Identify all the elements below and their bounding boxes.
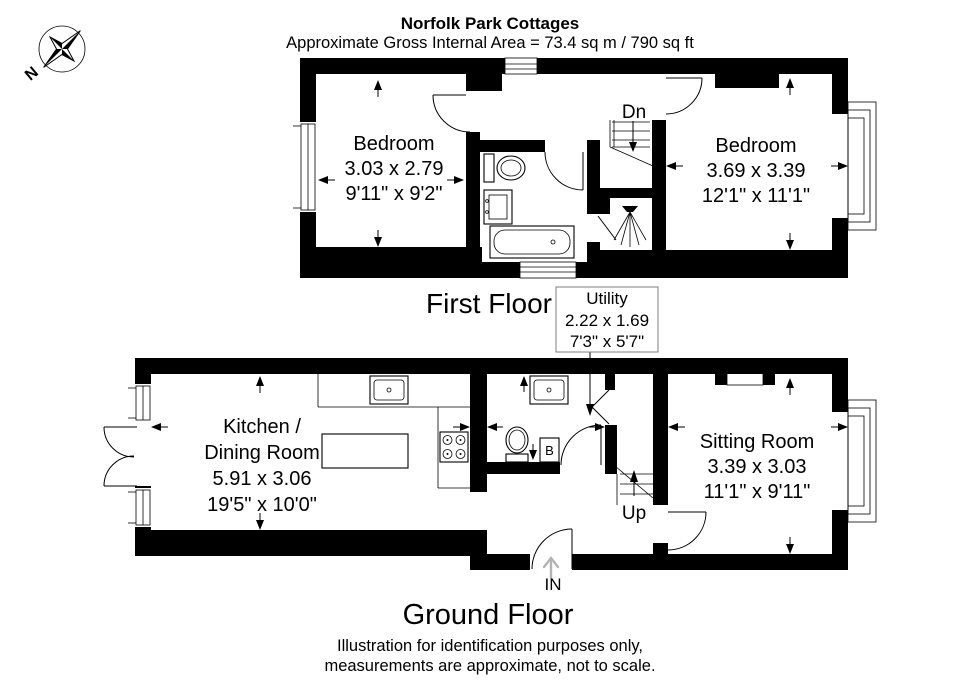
bedroom2-imperial: 12'1" x 11'1" bbox=[702, 185, 810, 207]
first-floor-label: First Floor bbox=[426, 288, 552, 319]
first-floor-plan: Dn bbox=[293, 58, 876, 278]
bedroom2-left-wall bbox=[652, 120, 666, 250]
plan-subtitle: Approximate Gross Internal Area = 73.4 s… bbox=[286, 34, 694, 52]
bathroom-top-wall bbox=[480, 140, 545, 152]
kitchen-name-line1: Kitchen / bbox=[223, 416, 301, 438]
bedroom1-window bbox=[293, 122, 316, 212]
utility-metric: 2.22 x 1.69 bbox=[565, 311, 649, 330]
bathroom-door bbox=[545, 152, 583, 190]
bedroom1-right-wall bbox=[466, 132, 480, 247]
ground-floor-plan: Up bbox=[104, 358, 876, 578]
bedroom1-metric: 3.03 x 2.79 bbox=[345, 158, 444, 180]
boiler-label: B bbox=[545, 443, 554, 458]
disclaimer-line1: Illustration for identification purposes… bbox=[337, 637, 643, 655]
bedroom2-door bbox=[666, 78, 702, 114]
hob-icon bbox=[440, 432, 468, 462]
sitting-metric: 3.39 x 3.03 bbox=[708, 456, 807, 478]
disclaimer-line2: measurements are approximate, not to sca… bbox=[324, 657, 655, 675]
stairs-up-label: Up bbox=[622, 503, 646, 524]
plan-title: Norfolk Park Cottages bbox=[401, 14, 580, 33]
bathroom-sink bbox=[484, 190, 512, 224]
stairs-down bbox=[610, 120, 653, 166]
bedroom1-name: Bedroom bbox=[353, 133, 434, 155]
kitchen-metric: 5.91 x 3.06 bbox=[213, 468, 312, 490]
french-doors bbox=[104, 422, 151, 486]
utility-sink bbox=[530, 376, 568, 404]
toilet-ground-floor bbox=[506, 427, 528, 462]
utility-callout: Utility 2.22 x 1.69 7'3" x 5'7" bbox=[556, 287, 658, 416]
compass-icon: N bbox=[22, 26, 85, 84]
kitchen-imperial: 19'5" x 10'0" bbox=[207, 494, 317, 516]
floorplan-drawing: Norfolk Park Cottages Approximate Gross … bbox=[0, 0, 980, 692]
kitchen-utility-wall bbox=[470, 374, 487, 492]
bedroom2-name: Bedroom bbox=[715, 135, 796, 157]
bedroom1-imperial: 9'11" x 9'2" bbox=[345, 183, 442, 205]
bathroom-window bbox=[520, 262, 576, 278]
kitchen-sink bbox=[370, 376, 408, 404]
sitting-name: Sitting Room bbox=[700, 431, 815, 453]
boiler: B bbox=[540, 438, 559, 462]
sitting-room-door bbox=[668, 512, 706, 550]
sitting-room-bay-window bbox=[832, 400, 876, 522]
landing-window bbox=[505, 58, 537, 74]
floorplan-page: Norfolk Park Cottages Approximate Gross … bbox=[0, 0, 980, 692]
kitchen-island bbox=[322, 434, 408, 468]
stairs-down-label: Dn bbox=[622, 102, 646, 123]
bathtub bbox=[490, 226, 574, 258]
entrance-label: IN bbox=[545, 575, 562, 594]
sitting-imperial: 11'1" x 9'11" bbox=[704, 481, 811, 503]
bifold-door bbox=[592, 390, 609, 424]
bedroom2-metric: 3.69 x 3.39 bbox=[707, 160, 806, 182]
bedroom1-door bbox=[433, 95, 470, 132]
stairs-up bbox=[615, 466, 653, 505]
chimney-breast-first bbox=[715, 74, 779, 88]
sitting-room-left-wall bbox=[653, 374, 668, 505]
kitchen-window-upper bbox=[128, 384, 151, 422]
toilet-first-floor bbox=[484, 154, 525, 182]
kitchen-window-lower bbox=[128, 488, 151, 527]
kitchen-name-line2: Dining Room bbox=[204, 442, 320, 464]
utility-imperial: 7'3" x 5'7" bbox=[570, 332, 644, 351]
ground-floor-label: Ground Floor bbox=[403, 599, 574, 631]
compass-north-label: N bbox=[22, 64, 42, 84]
shower-icon bbox=[614, 206, 646, 256]
utility-name: Utility bbox=[586, 289, 628, 308]
shower-angled-door bbox=[598, 216, 616, 240]
